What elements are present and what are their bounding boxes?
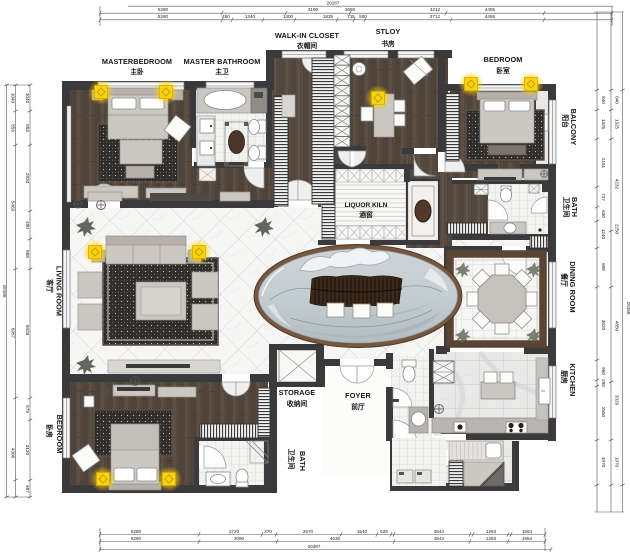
svg-text:LIVING ROOM: LIVING ROOM [55, 266, 64, 316]
svg-text:STORAGE: STORAGE [279, 388, 316, 397]
svg-text:BEDROOM: BEDROOM [55, 415, 64, 454]
svg-text:STLOY: STLOY [376, 27, 401, 36]
svg-text:3644: 3644 [434, 529, 445, 534]
svg-text:4306: 4306 [11, 448, 16, 459]
svg-text:4232: 4232 [615, 179, 620, 190]
svg-text:853: 853 [25, 124, 30, 132]
svg-text:853: 853 [11, 124, 16, 132]
svg-text:370: 370 [264, 529, 272, 534]
svg-text:2720: 2720 [229, 529, 240, 534]
svg-text:579: 579 [25, 405, 30, 413]
svg-text:687: 687 [25, 485, 30, 493]
svg-text:主卫: 主卫 [215, 67, 229, 76]
svg-text:4850: 4850 [615, 321, 620, 332]
svg-text:526: 526 [380, 529, 388, 534]
svg-text:1540: 1540 [357, 529, 368, 534]
svg-text:490: 490 [25, 221, 30, 229]
svg-text:3090: 3090 [234, 536, 245, 541]
svg-text:840: 840 [601, 96, 606, 104]
svg-text:WALK-IN CLOSET: WALK-IN CLOSET [275, 31, 340, 40]
svg-text:5928: 5928 [25, 325, 30, 336]
svg-text:酒窖: 酒窖 [359, 210, 373, 219]
svg-text:衣帽间: 衣帽间 [297, 41, 318, 50]
svg-text:18166: 18166 [2, 285, 7, 298]
svg-text:BEDROOM: BEDROOM [484, 55, 523, 64]
svg-text:868: 868 [25, 250, 30, 258]
svg-text:2550: 2550 [601, 407, 606, 418]
svg-text:4212: 4212 [430, 7, 441, 12]
svg-text:20287: 20287 [308, 544, 321, 549]
svg-text:客厅: 客厅 [46, 278, 55, 293]
svg-text:5463: 5463 [11, 201, 16, 212]
svg-text:5280: 5280 [131, 529, 142, 534]
svg-text:5280: 5280 [158, 14, 169, 19]
svg-text:5280: 5280 [131, 536, 142, 541]
svg-text:卧室: 卧室 [496, 66, 510, 75]
svg-text:3644: 3644 [434, 536, 445, 541]
svg-text:1554: 1554 [522, 536, 533, 541]
svg-text:KITCHEN: KITCHEN [568, 363, 577, 396]
svg-text:餐厅: 餐厅 [560, 272, 569, 287]
svg-text:6957: 6957 [11, 328, 16, 339]
svg-text:MASTER BATHROOM: MASTER BATHROOM [184, 57, 261, 66]
svg-text:卫生间: 卫生间 [287, 449, 296, 470]
svg-text:840: 840 [615, 96, 620, 104]
svg-text:3120: 3120 [25, 445, 30, 456]
svg-text:808: 808 [601, 263, 606, 271]
svg-text:卫生间: 卫生间 [562, 197, 571, 218]
svg-text:20187: 20187 [327, 1, 340, 6]
svg-text:BATH: BATH [570, 197, 579, 217]
svg-text:1040: 1040 [25, 93, 30, 104]
svg-text:3712: 3712 [430, 14, 441, 19]
svg-text:1970: 1970 [615, 457, 620, 468]
svg-text:2570: 2570 [303, 529, 314, 534]
svg-text:715: 715 [347, 14, 355, 19]
svg-text:厨房: 厨房 [560, 370, 569, 384]
svg-text:2650: 2650 [345, 7, 356, 12]
svg-text:1400: 1400 [283, 14, 294, 19]
svg-text:1554: 1554 [522, 529, 533, 534]
svg-text:1970: 1970 [601, 457, 606, 468]
svg-text:288: 288 [601, 379, 606, 387]
svg-text:450: 450 [222, 14, 230, 19]
svg-text:2250: 2250 [615, 224, 620, 235]
svg-text:前厅: 前厅 [351, 402, 365, 411]
svg-text:BALCONY: BALCONY [569, 109, 578, 146]
svg-text:1325: 1325 [601, 119, 606, 130]
svg-text:2920: 2920 [25, 173, 30, 184]
svg-text:960: 960 [601, 367, 606, 375]
svg-text:书房: 书房 [381, 39, 395, 48]
svg-text:4455: 4455 [485, 14, 496, 19]
svg-text:主卧: 主卧 [130, 67, 144, 76]
svg-text:阳台: 阳台 [561, 114, 570, 128]
svg-text:1325: 1325 [615, 119, 620, 130]
svg-text:5280: 5280 [158, 7, 169, 12]
svg-text:FOYER: FOYER [345, 391, 371, 400]
svg-text:2181: 2181 [601, 158, 606, 169]
svg-text:1835: 1835 [323, 14, 334, 19]
svg-text:MASTERBEDROOM: MASTERBEDROOM [102, 57, 172, 66]
svg-text:1263: 1263 [486, 536, 497, 541]
svg-text:18166: 18166 [626, 302, 630, 315]
svg-text:DINING ROOM: DINING ROOM [568, 261, 577, 312]
svg-text:1263: 1263 [486, 529, 497, 534]
svg-text:4455: 4455 [485, 7, 496, 12]
svg-text:500: 500 [359, 14, 367, 19]
svg-text:630: 630 [601, 210, 606, 218]
svg-text:1240: 1240 [601, 229, 606, 240]
svg-text:1340: 1340 [245, 14, 256, 19]
svg-text:卧房: 卧房 [45, 424, 54, 438]
svg-text:收纳间: 收纳间 [287, 399, 308, 408]
svg-text:3020: 3020 [601, 320, 606, 331]
svg-text:1040: 1040 [11, 93, 16, 104]
svg-text:BATH: BATH [298, 451, 307, 471]
svg-text:727: 727 [601, 193, 606, 201]
svg-text:3190: 3190 [308, 7, 319, 12]
svg-text:3326: 3326 [615, 395, 620, 406]
svg-text:4636: 4636 [330, 536, 341, 541]
svg-text:LIQUOR KILN: LIQUOR KILN [345, 202, 388, 209]
